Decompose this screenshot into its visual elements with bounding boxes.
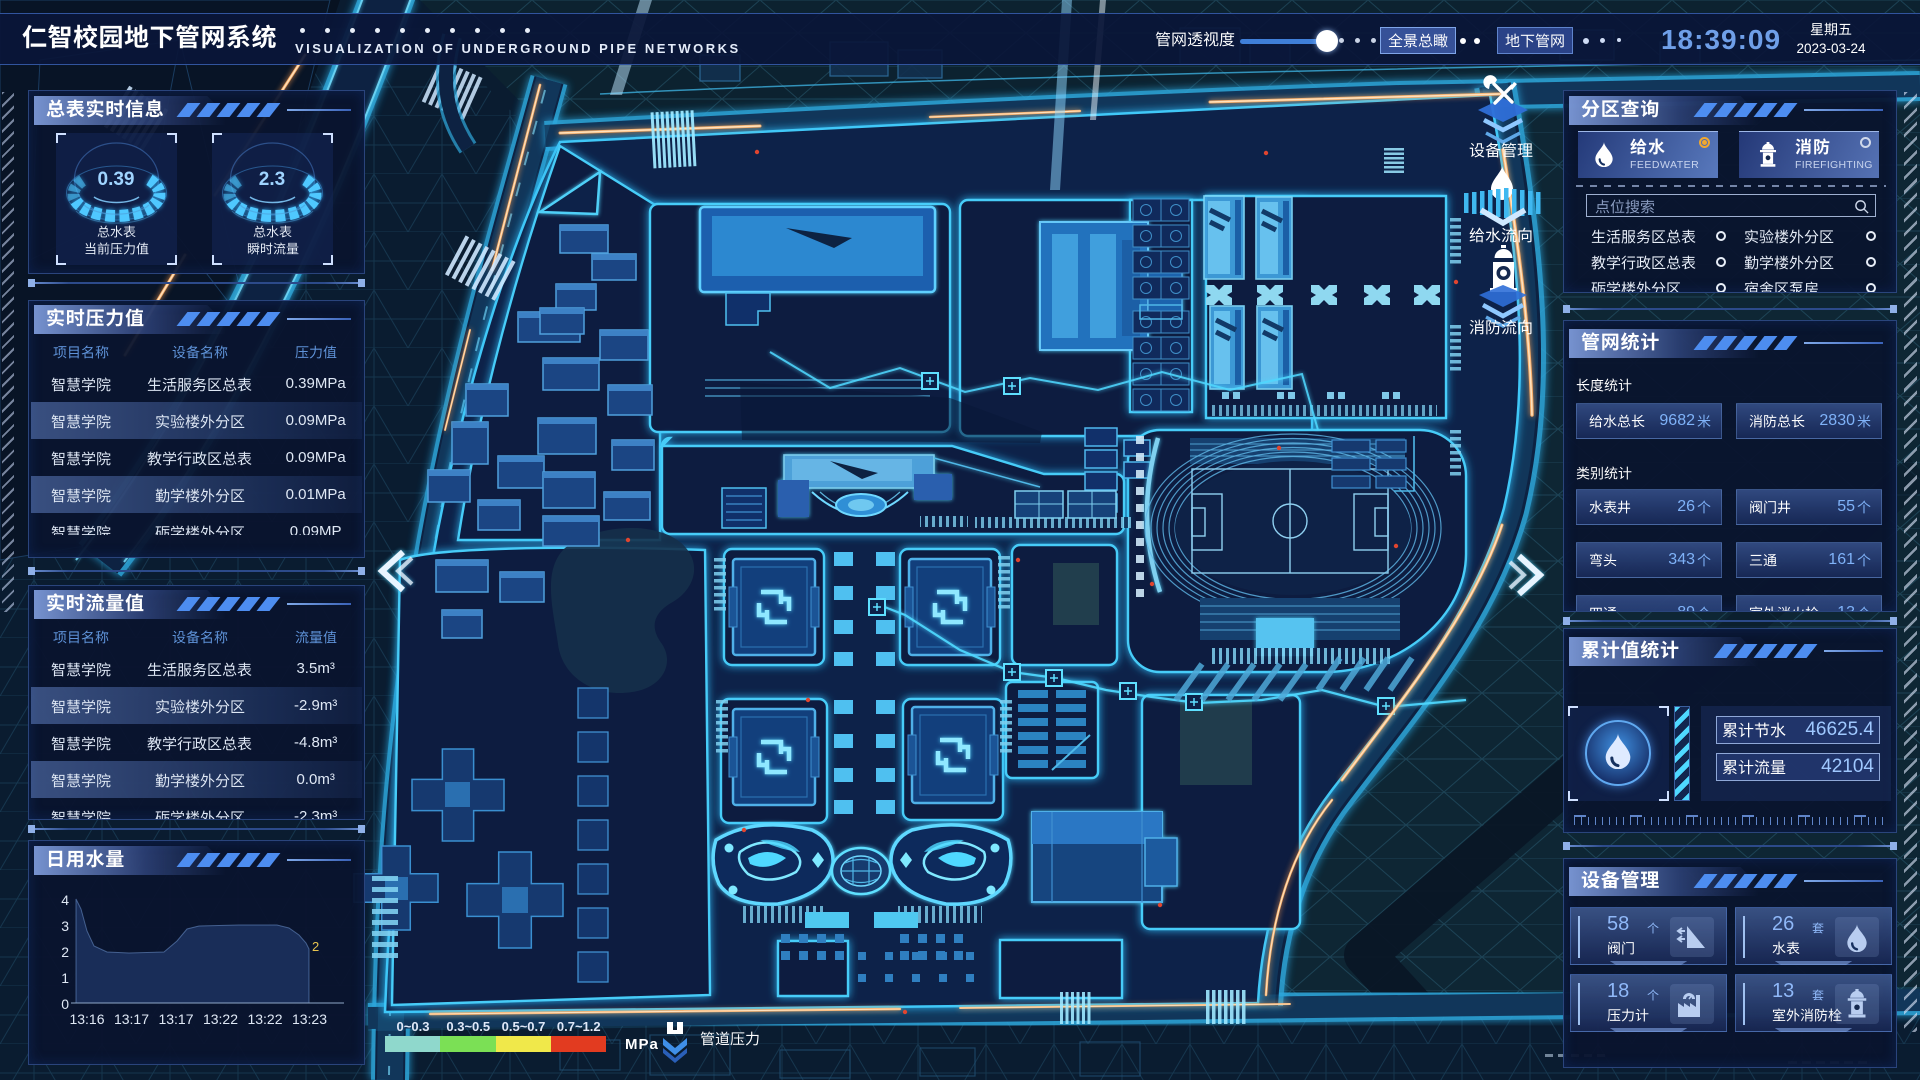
svg-text:0.39: 0.39 [98,169,135,190]
svg-text:2.3: 2.3 [259,169,285,190]
